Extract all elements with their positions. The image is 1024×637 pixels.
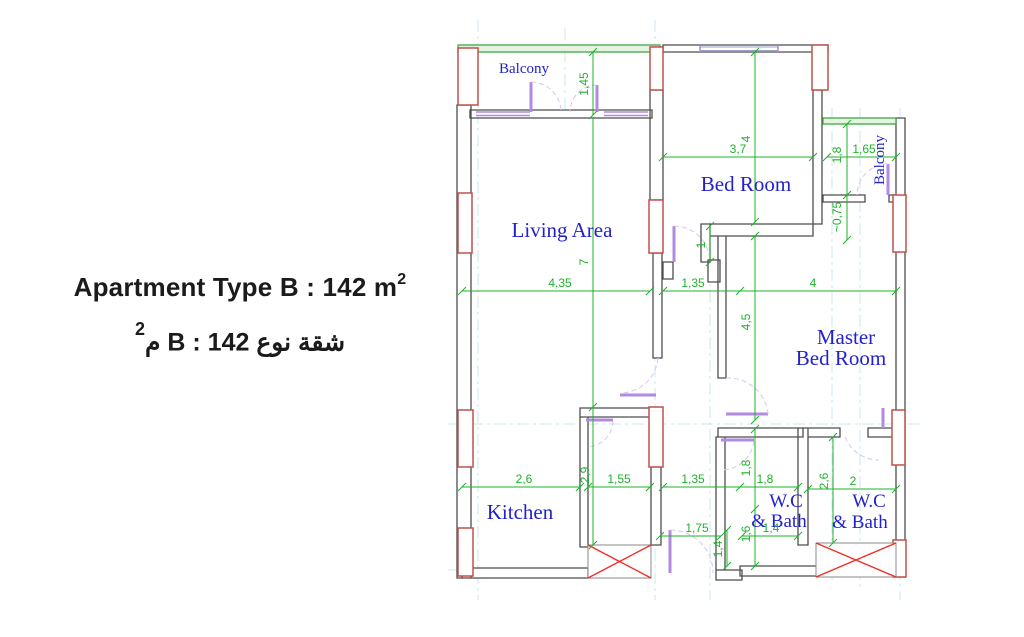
room-label-wc-right-line2: & Bath <box>832 512 888 533</box>
dim-balcony-height: 1,45 <box>577 72 591 96</box>
dim-hall-width: 1,35 <box>681 276 705 290</box>
apartment-title-arabic-superscript: 2 <box>135 319 145 339</box>
dim-wc-right-width: 2 <box>850 474 857 488</box>
apartment-title-arabic: شقة نوع B : 142 م2 <box>55 325 425 357</box>
dim-bedroom-width: 3,7 <box>730 142 747 156</box>
dim-hall-door-width: 1 <box>694 241 708 248</box>
dim-entry-depth: 1,4 <box>711 540 725 557</box>
dim-wc-left-lower-height: 1,6 <box>739 525 753 542</box>
dim-balcony-right-offset: ~0,75 <box>830 201 844 232</box>
dim-living-height: 7 <box>577 258 591 265</box>
dim-wc-right-height: 2,6 <box>817 472 831 489</box>
apartment-title-english-text: Apartment Type B : 142 m <box>74 272 398 302</box>
apartment-title-arabic-text: شقة نوع B : 142 م <box>145 328 345 356</box>
dim-balcony-right-height: 1,8 <box>830 146 844 163</box>
dim-master-width: 4 <box>810 276 817 290</box>
dim-bedroom-height: 4 <box>739 135 753 142</box>
columns <box>458 45 906 577</box>
room-label-balcony-top: Balcony <box>499 61 549 77</box>
dim-living-width: 4,35 <box>548 276 572 290</box>
dim-hall-width-lower: 1,35 <box>681 472 705 486</box>
apartment-title-english-superscript: 2 <box>397 271 406 288</box>
room-label-bed-room: Bed Room <box>701 172 791 196</box>
dim-kitchen-height: 2,9 <box>578 466 592 483</box>
room-label-wc-right-line1: W.C <box>852 491 886 512</box>
window-glazing <box>476 46 778 116</box>
title-block: Apartment Type B : 142 m2 شقة نوع B : 14… <box>55 272 425 357</box>
dim-master-height: 4,5 <box>739 313 753 330</box>
dim-wc-left-height: 1,8 <box>739 459 753 476</box>
dim-kitchen-width: 2,6 <box>516 472 533 486</box>
apartment-title-english: Apartment Type B : 142 m2 <box>55 272 425 303</box>
dim-balcony-right-width: 1,65 <box>852 142 876 156</box>
dimension-lines <box>458 48 900 570</box>
dim-entrance-width: 1,75 <box>685 521 709 535</box>
dim-wc-left-width: 1,8 <box>757 472 774 486</box>
page: Balcony Living Area Bed Room Balcony Mas… <box>0 0 1024 637</box>
room-label-master-line2: Bed Room <box>796 346 886 370</box>
room-label-wc-left-line1: W.C <box>769 491 803 512</box>
room-label-kitchen: Kitchen <box>487 500 554 524</box>
room-label-living-area: Living Area <box>512 218 614 242</box>
dim-pantry-width: 1,55 <box>607 472 631 486</box>
dim-wc-left-lower-width: 1,4 <box>763 521 780 535</box>
